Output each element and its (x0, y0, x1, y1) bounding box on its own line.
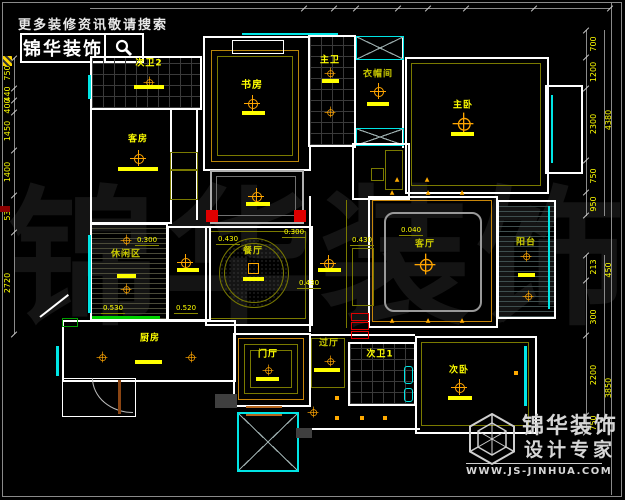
label-bar (242, 111, 265, 115)
footer-brand: 锦华装饰 (522, 416, 618, 438)
red-marker (0, 206, 10, 212)
cabinet (352, 248, 374, 306)
label-bar (448, 396, 472, 400)
elevation-marker: 0.530 (101, 305, 125, 314)
ceiling-light-symbol (521, 251, 531, 261)
label-bar (518, 273, 535, 277)
ceiling-light-symbol (308, 407, 318, 417)
ceiling-light-symbol (249, 189, 263, 203)
downlight (514, 371, 518, 375)
red-marker (351, 331, 369, 339)
footer-subtitle: 设计专家 (524, 441, 616, 460)
dim-value: 1400 (4, 162, 12, 182)
arrow-marker: ▲ (390, 318, 395, 324)
wall (309, 196, 311, 332)
label-bar (314, 368, 340, 372)
ceiling-light-symbol (121, 284, 131, 294)
room-label: 次卧 (449, 367, 469, 376)
ceiling-light-symbol (523, 291, 533, 301)
room-label: 门厅 (258, 351, 278, 360)
elevation-marker: 0.300 (135, 237, 159, 246)
room-label: 休闲区 (111, 251, 141, 260)
ceiling-box (411, 63, 541, 186)
label-bar (367, 102, 389, 106)
dim-total: 3850 (605, 378, 613, 398)
room-kitchen (62, 320, 236, 382)
label-bar (135, 360, 162, 364)
ceiling-light-symbol (131, 151, 145, 165)
arrow-marker: ▲ (460, 318, 465, 324)
room-guest (90, 108, 172, 224)
elevation-marker: 0.040 (399, 227, 423, 236)
dim-value: 2200 (590, 365, 598, 385)
label-bar (256, 377, 279, 381)
dim-value: 1450 (4, 121, 12, 141)
downlight (360, 416, 364, 420)
ceiling-light-symbol (325, 107, 335, 117)
label-bar (117, 274, 136, 278)
room-label: 主卧 (453, 102, 473, 111)
ceiling-line (346, 200, 347, 328)
room-label: 阳台 (516, 239, 536, 248)
ceiling-light-symbol (178, 255, 192, 269)
arrow-marker: ▲ (460, 190, 465, 196)
cabinet (371, 168, 384, 181)
label-bar (134, 85, 164, 89)
dim-line-right-lower-total (604, 255, 605, 432)
room-label: 衣帽间 (363, 71, 393, 80)
ceiling-light-symbol (121, 235, 131, 245)
ceiling-light-symbol (263, 365, 273, 375)
window-line (88, 75, 91, 99)
dim-value: 750 (590, 168, 598, 183)
fixture (404, 388, 413, 402)
dim-value: 213 (590, 259, 598, 274)
downlight (335, 396, 339, 400)
label-bar (118, 167, 158, 171)
ceiling-light-symbol (452, 380, 466, 394)
footer-website: WWW.JS-JINHUA.COM (466, 467, 612, 477)
green-threshold (92, 316, 160, 319)
elevation-marker: 0.430 (297, 280, 321, 289)
elevation-marker: 0.520 (174, 305, 198, 314)
room-label: 书房 (241, 81, 263, 91)
door-leaf (118, 380, 121, 414)
table-symbol (248, 263, 259, 274)
window-line (548, 206, 550, 309)
column-marker (206, 210, 218, 222)
room-label: 客厅 (415, 241, 435, 250)
window-line (551, 95, 553, 163)
dim-total: 4380 (605, 110, 613, 130)
arrow-marker: ▲ (426, 190, 431, 196)
dim-line-right-lower (586, 255, 587, 432)
cabinet (170, 152, 198, 170)
room-label: 过厅 (319, 340, 339, 349)
wall-block (215, 394, 237, 408)
column-marker (294, 210, 306, 222)
dim-value: 700 (590, 36, 598, 51)
red-marker (351, 322, 369, 330)
label-bar (318, 268, 341, 272)
cabinet (385, 150, 403, 190)
window-line (56, 346, 59, 376)
downlight (383, 416, 387, 420)
ceiling-light-symbol (186, 352, 196, 362)
ceiling-light-symbol (325, 68, 335, 78)
floorplan-canvas: 锦华装饰 更多装修资讯敬请搜索 锦华装饰 750 440 400 1450 14… (0, 0, 625, 500)
label-bar (246, 202, 270, 206)
arrow-marker: ▲ (425, 177, 430, 183)
window-line (524, 346, 527, 406)
arrow-marker: ▲ (395, 177, 400, 183)
dim-value: 950 (590, 196, 598, 211)
room-label: 次卫2 (135, 60, 162, 69)
wall (300, 428, 420, 430)
dim-value: 400 (4, 98, 12, 113)
downlight (335, 416, 339, 420)
ceiling-light-symbol (416, 255, 434, 273)
dim-value: 750 (4, 65, 12, 80)
fixture (404, 366, 413, 384)
hazard-marker (3, 56, 12, 66)
dim-total: 450 (605, 262, 613, 277)
dim-value: 2300 (590, 114, 598, 134)
ceiling-light-symbol (454, 114, 472, 132)
ceiling-light-symbol (325, 356, 335, 366)
elevation-marker: 0.430 (216, 236, 240, 245)
window-line (88, 235, 91, 313)
hexagon-cube-icon (465, 412, 519, 466)
dim-value: 1200 (590, 62, 598, 82)
label-bar (322, 79, 339, 83)
ceiling-light-symbol (245, 96, 259, 110)
red-marker (351, 313, 369, 321)
elevation-marker: 0.300 (282, 229, 306, 238)
room-master-bath (308, 35, 356, 147)
elevation-marker: 0.430 (350, 237, 374, 246)
arrow-marker: ▲ (426, 318, 431, 324)
footer-divider (466, 463, 602, 464)
magnifier-icon (114, 38, 134, 58)
room-label: 客房 (128, 136, 148, 145)
elevator-shaft (237, 412, 299, 472)
arrow-marker: ▲ (390, 190, 395, 196)
wall-block (296, 428, 312, 438)
label-bar (177, 268, 199, 272)
dim-value: 2720 (4, 273, 12, 293)
header-tagline: 更多装修资讯敬请搜索 (18, 14, 168, 33)
ceiling-light-symbol (97, 352, 107, 362)
wardrobe-xbox (356, 36, 404, 60)
label-bar (243, 277, 264, 281)
desk (232, 40, 284, 54)
room-label: 次卫1 (366, 351, 393, 360)
cabinet (170, 170, 198, 200)
ceiling-light-symbol (371, 84, 385, 98)
room-label: 厨房 (140, 335, 160, 344)
room-label: 餐厅 (243, 248, 263, 257)
green-marker (62, 318, 78, 327)
room-label: 主卫 (320, 57, 340, 66)
dim-value: 300 (590, 309, 598, 324)
label-bar (451, 132, 474, 136)
